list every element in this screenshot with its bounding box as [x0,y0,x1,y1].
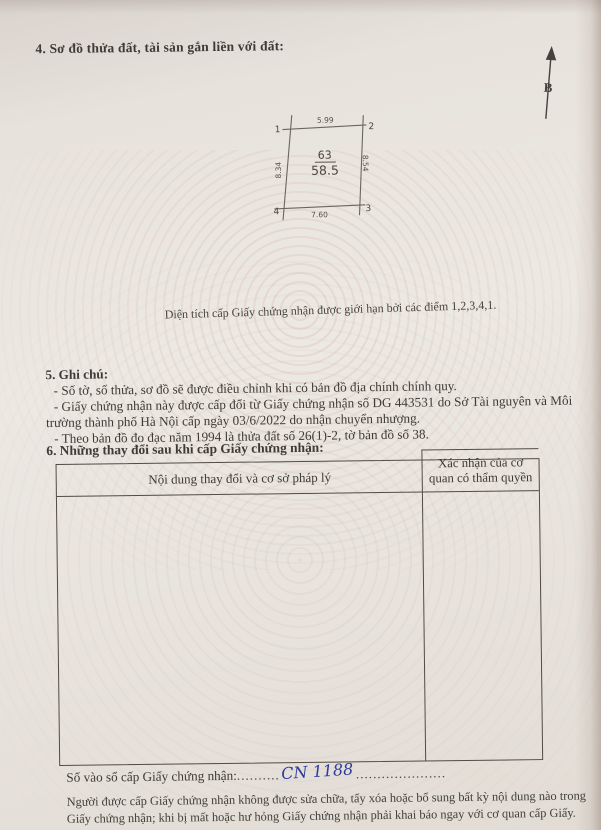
dotted-leader: ..................... [356,765,446,781]
diagram-caption: Diện tích cấp Giấy chứng nhận được giới … [165,298,497,323]
north-arrow-icon: B [534,42,565,123]
table-column-divider [422,492,426,761]
plot-number: 63 [318,149,332,162]
corner-1-label: 1 [275,125,281,135]
corner-2-label: 2 [368,122,374,132]
section4-heading: 4. Sơ đồ thửa đất, tài sản gắn liền với … [35,38,284,57]
corner-3-label: 3 [365,204,371,214]
corner-4-label: 4 [273,207,279,217]
certificate-page: 4. Sơ đồ thửa đất, tài sản gắn liền với … [0,0,601,830]
document-content: 4. Sơ đồ thửa đất, tài sản gắn liền với … [0,0,601,830]
dimension-bottom: 7.60 [311,210,328,219]
handwritten-serial-number: CN 1188 [281,760,354,784]
dotted-leader: .......... [237,767,280,783]
section5-notes: 5. Ghi chú: - Số tờ, số thửa, sơ đồ sẽ đ… [45,361,574,448]
parcel-diagram: 1 2 3 4 5.99 7.60 8.34 8.54 63 58.5 [252,105,385,229]
table-col2-header: Xác nhận của cơ quan có thẩm quyền [421,448,539,491]
table-col1-header: Nội dung thay đổi và cơ sở pháp lý [57,461,423,496]
dimension-right: 8.54 [361,155,370,172]
changes-table: Nội dung thay đổi và cơ sở pháp lý Xác n… [56,458,544,766]
footer-notice: Người được cấp Giấy chứng nhận không đượ… [67,787,591,826]
dimension-top: 5.99 [317,116,334,125]
serial-label: Số vào sổ cấp Giấy chứng nhận: [66,768,237,785]
serial-number-line: Số vào sổ cấp Giấy chứng nhận:..........… [66,762,446,786]
north-label: B [543,80,553,95]
plot-area: 58.5 [311,163,339,178]
dimension-left: 8.34 [274,162,283,179]
section6-heading: 6. Những thay đổi sau khi cấp Giấy chứng… [46,440,323,459]
